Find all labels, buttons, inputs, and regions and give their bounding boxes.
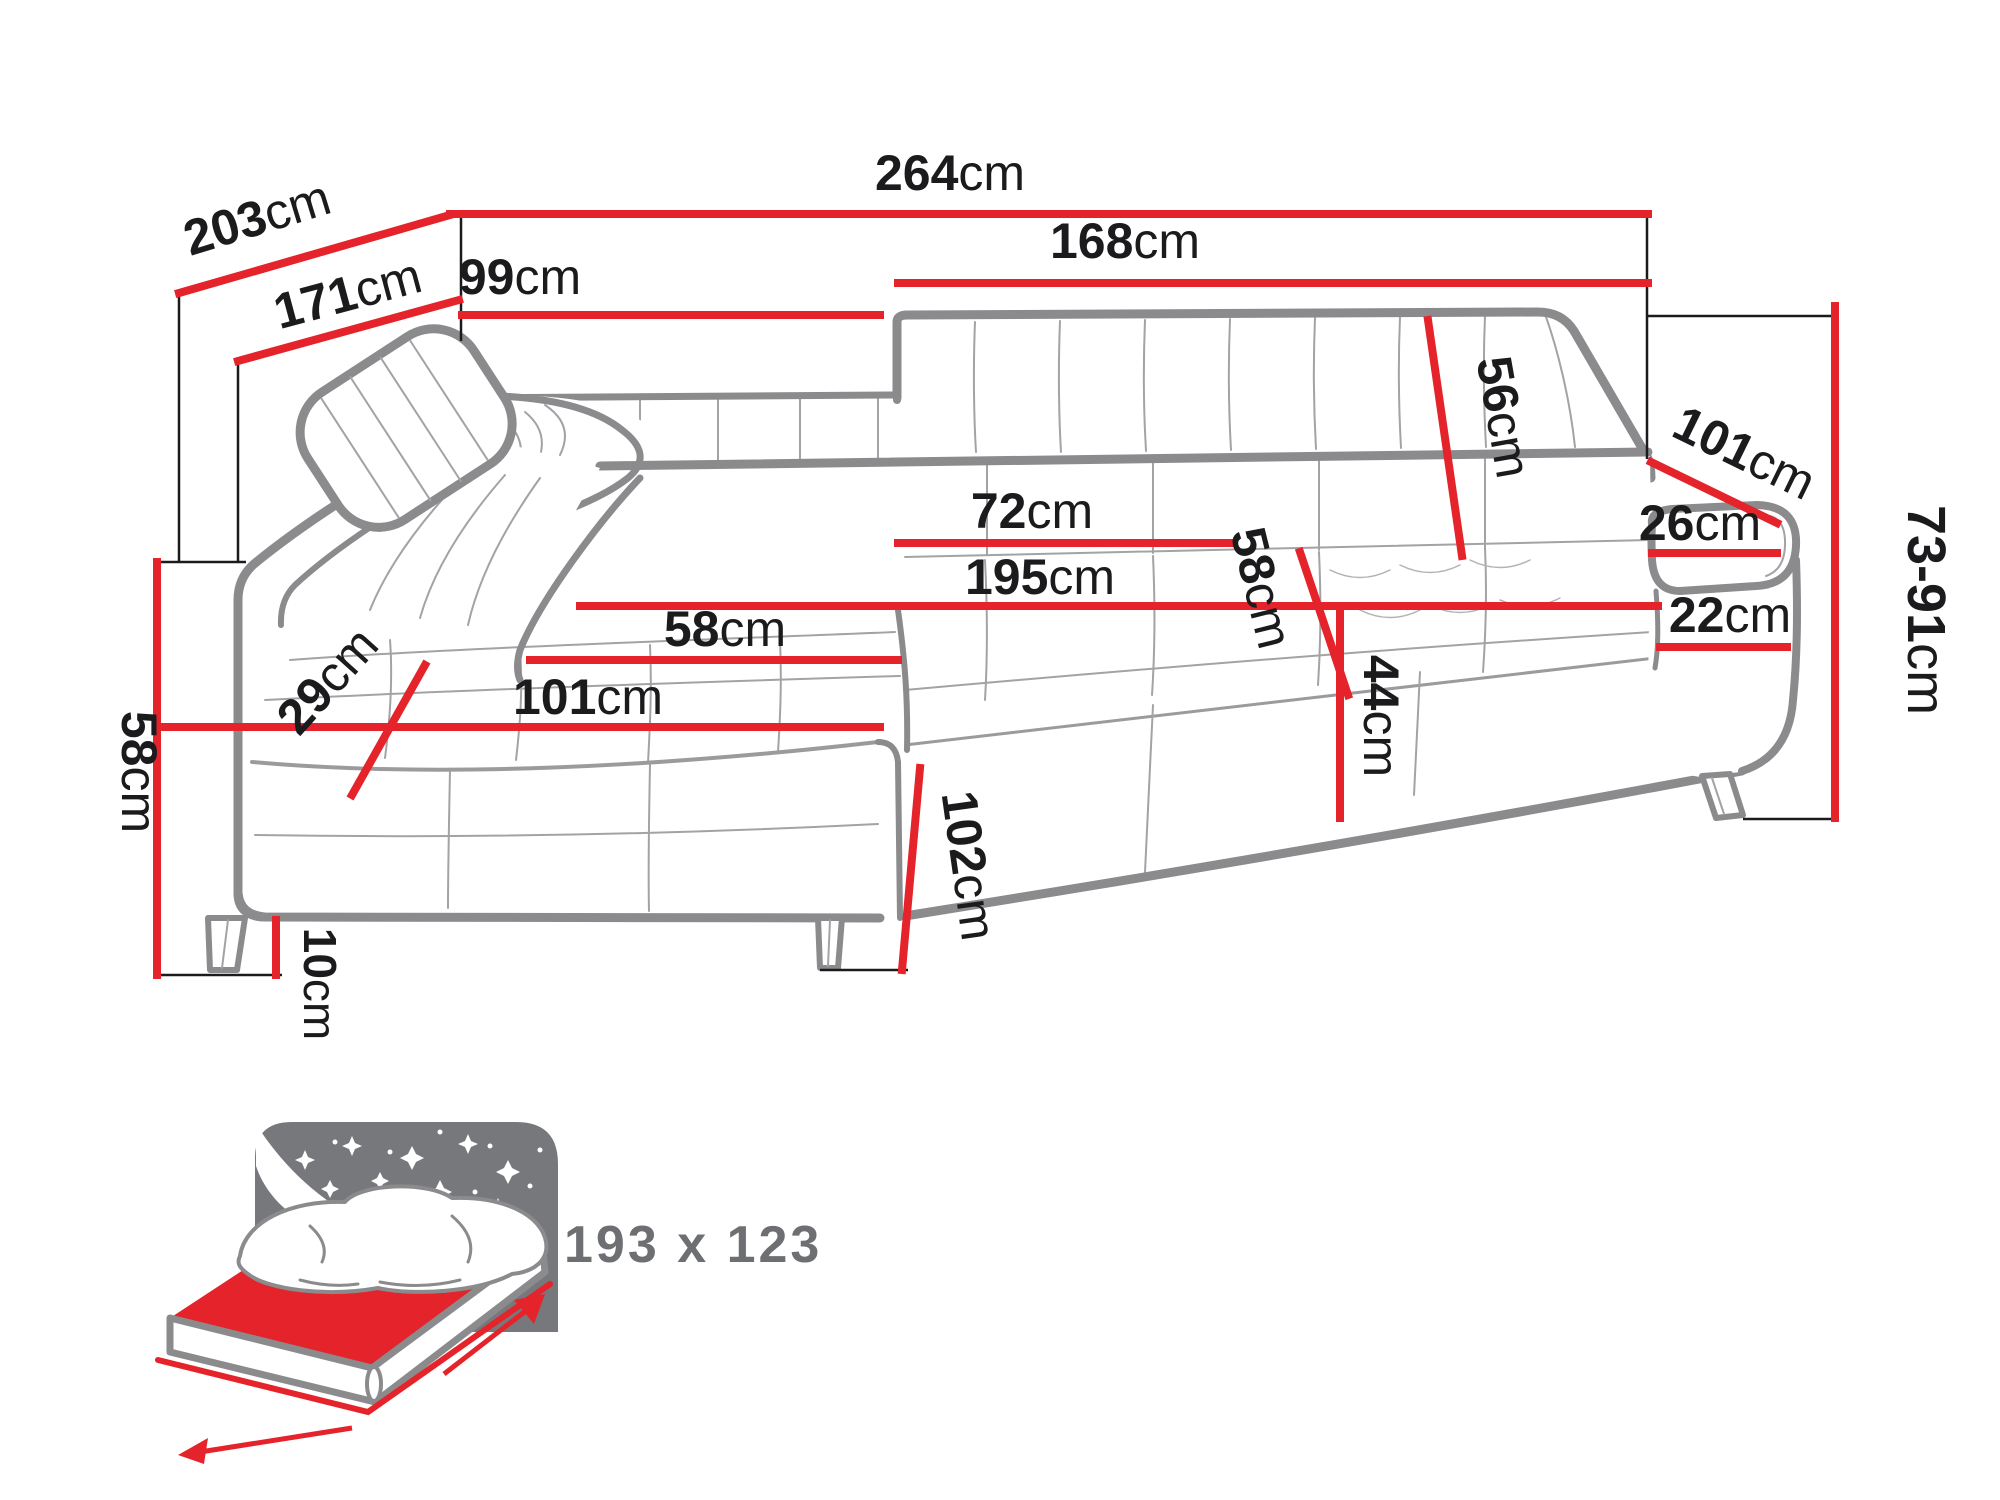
- label-armrest-height: 22cm: [1669, 587, 1791, 643]
- label-seat-depth-back: 72cm: [971, 483, 1093, 539]
- label-armrest-width: 26cm: [1639, 495, 1761, 551]
- sleeping-area-size: 193 x 123: [564, 1216, 822, 1274]
- bed-length-arrow: [178, 1428, 352, 1464]
- label-leg-height: 10cm: [294, 928, 346, 1041]
- label-seat-length: 195cm: [965, 549, 1115, 605]
- sofa-dimension-diagram: 264cm 203cm 171cm 99cm 168cm 56cm 101cm …: [0, 0, 2000, 1500]
- label-side-height: 58cm: [111, 711, 167, 833]
- label-seat-section-width: 168cm: [1050, 213, 1200, 269]
- label-width-total: 264cm: [875, 145, 1025, 201]
- label-chaise-length: 101cm: [513, 669, 663, 725]
- label-seat-height: 44cm: [1353, 655, 1409, 777]
- sofa-dimension-diagram-page: 264cm 203cm 171cm 99cm 168cm 56cm 101cm …: [0, 0, 2000, 1500]
- sofa-drawing: [208, 310, 1797, 970]
- sleeping-area-icon: 193 x 123: [0, 1122, 822, 1464]
- label-side-depth: 101cm: [1665, 395, 1824, 511]
- label-chaise-seat-width: 58cm: [664, 601, 786, 657]
- bed-corner-button: [367, 1367, 381, 1401]
- label-chaise-width: 99cm: [459, 249, 581, 305]
- label-height-range: 73-91cm: [1896, 505, 1956, 715]
